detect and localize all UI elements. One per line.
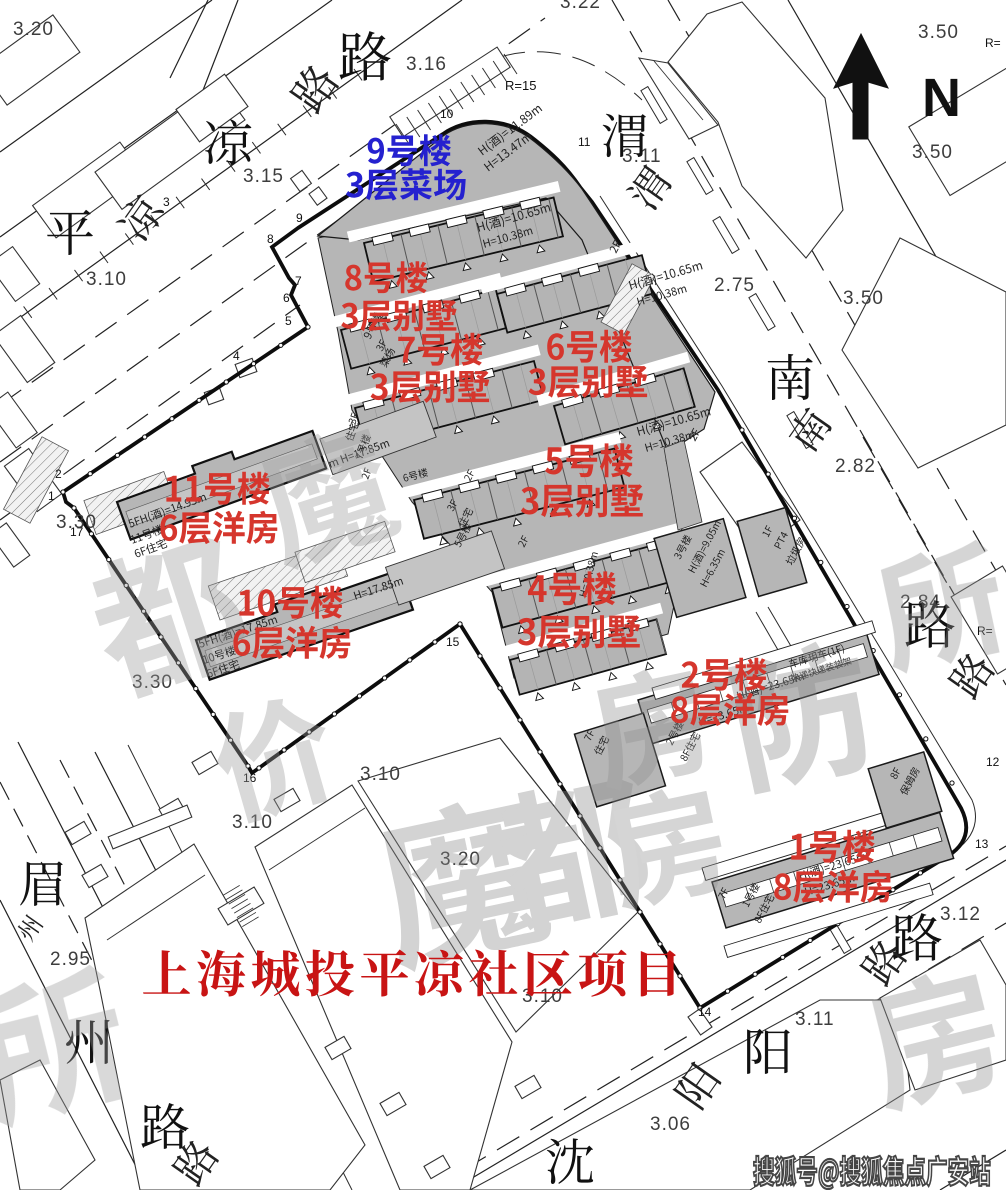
svg-text:15: 15 xyxy=(446,635,460,649)
svg-text:1: 1 xyxy=(48,489,55,503)
svg-text:R=: R= xyxy=(985,36,1001,50)
svg-text:2.82: 2.82 xyxy=(835,456,876,477)
svg-text:3: 3 xyxy=(163,195,170,209)
svg-text:2: 2 xyxy=(55,467,62,481)
svg-text:3.30: 3.30 xyxy=(56,512,97,533)
svg-text:5: 5 xyxy=(285,314,292,328)
svg-text:3.50: 3.50 xyxy=(912,142,953,163)
svg-text:3.06: 3.06 xyxy=(650,1114,691,1135)
svg-text:3.10: 3.10 xyxy=(86,269,127,290)
svg-text:R=15: R=15 xyxy=(505,78,536,93)
svg-text:10: 10 xyxy=(440,107,454,121)
svg-text:6: 6 xyxy=(283,291,290,305)
svg-text:N: N xyxy=(922,68,961,128)
svg-text:3.12: 3.12 xyxy=(940,904,981,925)
svg-text:7: 7 xyxy=(295,274,302,288)
svg-text:4: 4 xyxy=(233,349,240,363)
svg-text:14: 14 xyxy=(698,1005,712,1019)
svg-text:3.22: 3.22 xyxy=(560,0,601,13)
svg-text:2.75: 2.75 xyxy=(714,275,755,296)
svg-text:3.50: 3.50 xyxy=(843,288,884,309)
svg-text:13: 13 xyxy=(975,837,989,851)
svg-text:8: 8 xyxy=(267,232,274,246)
svg-text:3.10: 3.10 xyxy=(360,764,401,785)
svg-text:2.95: 2.95 xyxy=(50,949,91,970)
svg-text:9: 9 xyxy=(296,211,303,225)
svg-text:3.20: 3.20 xyxy=(13,19,54,40)
svg-text:12: 12 xyxy=(986,755,1000,769)
svg-text:3.50: 3.50 xyxy=(918,22,959,43)
svg-text:3.15: 3.15 xyxy=(243,166,284,187)
svg-text:11: 11 xyxy=(578,135,591,149)
svg-text:3.11: 3.11 xyxy=(795,1009,835,1030)
svg-text:3.16: 3.16 xyxy=(406,54,447,75)
